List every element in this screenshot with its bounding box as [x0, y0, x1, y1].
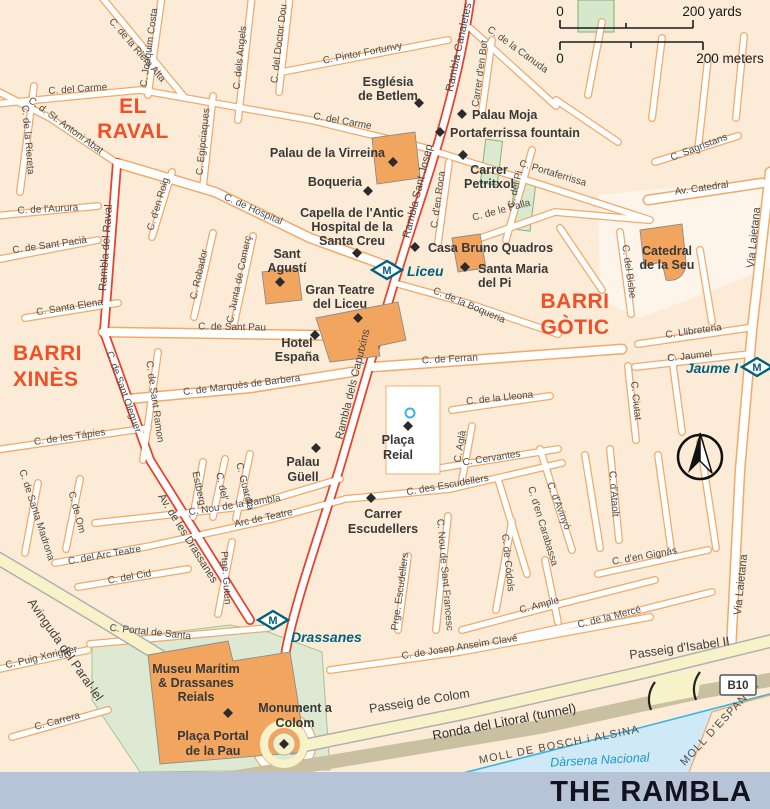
poi-label: Plaça	[382, 433, 416, 447]
rambla-map-page: 0 200 yards 0 200 meters EL RAVAL BARRI …	[0, 0, 770, 809]
metro-m-glyph: M	[382, 265, 391, 277]
scale-meters: 200 meters	[696, 51, 764, 66]
poi-label: Reials	[178, 690, 215, 704]
scale-yards: 200 yards	[682, 4, 742, 19]
poi-label: Palau	[286, 455, 319, 469]
b10-badge: B10	[720, 675, 756, 695]
poi-label: Güell	[287, 470, 318, 484]
metro-label: Liceu	[407, 263, 444, 279]
poi-label: Escudellers	[348, 522, 418, 536]
poi-label: Palau Moja	[472, 108, 538, 122]
metro-label: Drassanes	[291, 629, 362, 645]
title-band: THE RAMBLA	[0, 772, 770, 809]
street-label: C. de Sant Pau	[198, 321, 266, 333]
poi-label: Plaça Portal	[177, 729, 249, 743]
metro-m-glyph: M	[752, 362, 761, 374]
district-label: EL	[119, 95, 147, 118]
poi-label: Hotel	[281, 336, 312, 350]
poi-label: Carrer	[470, 163, 508, 177]
poi-label: Museu Marítim	[152, 662, 240, 676]
poi-label: Santa Creu	[319, 234, 385, 248]
poi-label: de la Seu	[640, 258, 695, 272]
poi-label: Colom	[276, 716, 315, 730]
poi-label: del Pi	[478, 276, 511, 290]
poi-label: Santa Maria	[478, 262, 549, 276]
poi-label: Gran Teatre	[305, 283, 374, 297]
poi-label: & Drassanes	[158, 676, 234, 690]
district-label: XINÈS	[13, 368, 79, 391]
poi-label: Capella de l'Antic	[300, 206, 404, 220]
poi-label: Catedral	[642, 244, 692, 258]
b10-badge-label: B10	[727, 680, 748, 692]
metro-m-glyph: M	[268, 615, 277, 627]
poi-label: Agustí	[268, 261, 307, 275]
poi-label: de la Pau	[186, 744, 241, 758]
rambla-map: 0 200 yards 0 200 meters EL RAVAL BARRI …	[0, 0, 770, 809]
district-label: GÒTIC	[541, 315, 610, 339]
district-label: BARRI	[13, 342, 82, 365]
poi-label: Carrer	[364, 507, 402, 521]
poi-label: Església	[363, 75, 415, 89]
poi-label: Hospital de la	[311, 220, 393, 234]
poi-label: de Betlem	[358, 89, 418, 103]
poi-label: del Liceu	[313, 297, 367, 311]
poi-label: Boqueria	[308, 175, 363, 189]
poi-label: España	[275, 350, 321, 364]
scale-zero-yards: 0	[556, 4, 564, 19]
poi-label: Monument a	[258, 701, 333, 715]
poi-label: Petritxol	[464, 177, 514, 191]
district-label: RAVAL	[97, 120, 169, 143]
poi-label: Palau de la Virreina	[270, 146, 386, 160]
scale-zero-meters: 0	[556, 51, 564, 66]
page-title: THE RAMBLA	[550, 776, 752, 808]
poi-label: Portaferrissa fountain	[450, 126, 580, 140]
poi-label: Sant	[273, 247, 301, 261]
district-label: BARRI	[541, 290, 610, 313]
poi-label: Casa Bruno Quadros	[428, 241, 553, 255]
metro-label: Jaume I	[686, 360, 739, 376]
poi-label: Reial	[383, 448, 413, 462]
